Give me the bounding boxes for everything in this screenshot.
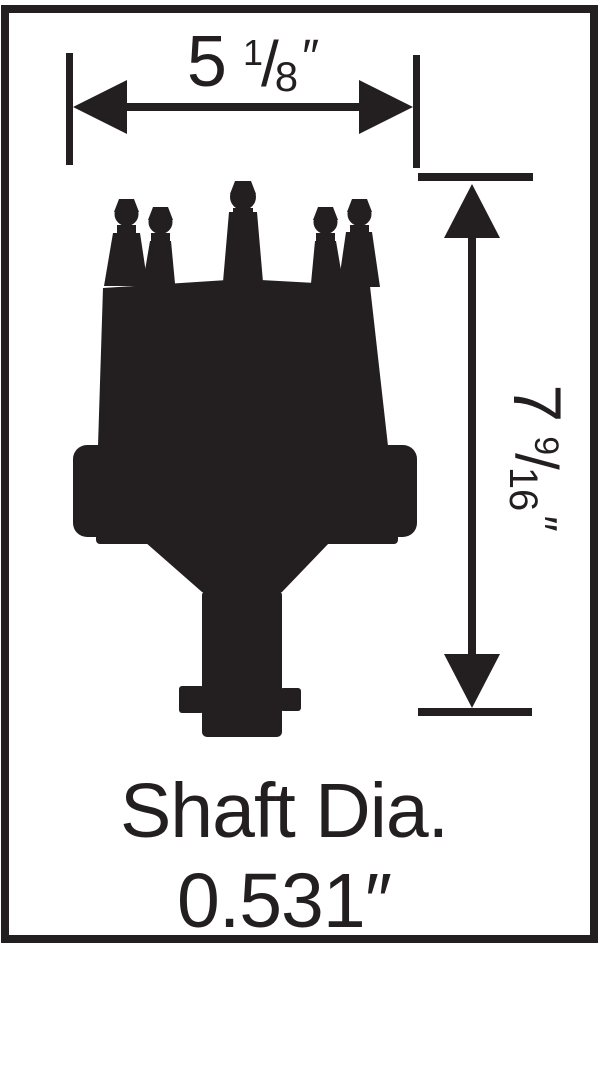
width-dim-right-arrowhead-icon	[359, 80, 413, 134]
tower-2-ball	[149, 210, 173, 234]
width-fraction-numerator: 1	[243, 35, 263, 71]
height-dim-line	[468, 232, 476, 658]
cap-tower-2	[141, 207, 176, 294]
width-dim-line	[122, 103, 372, 111]
shaft-collar-left	[179, 686, 204, 713]
height-dimension-label: 7 9 / 16 ″	[491, 363, 571, 553]
width-inch-mark: ″	[302, 34, 319, 82]
tower-4-ball	[314, 210, 338, 234]
width-whole-number: 5	[187, 26, 227, 98]
height-whole-number: 7	[503, 384, 571, 422]
tower-1-ball	[115, 202, 139, 226]
distributor-silhouette	[73, 181, 417, 737]
cap-tower-1	[104, 199, 148, 286]
tower-5-ball	[348, 202, 372, 226]
housing-taper	[145, 542, 330, 592]
tower-3-ball	[230, 184, 256, 210]
width-dim-left-extension-line	[66, 53, 73, 165]
shaft	[202, 590, 282, 737]
shaft-diameter-value: 0.531″	[54, 856, 514, 946]
tower-1-column	[104, 233, 148, 286]
shaft-diameter-text: Shaft Dia.	[54, 766, 514, 856]
cap-tower-3-center	[223, 181, 263, 282]
cap-body	[98, 279, 388, 446]
housing-flange	[73, 445, 417, 537]
height-inch-mark: ″	[518, 515, 564, 531]
height-dim-up-arrowhead-icon	[444, 184, 500, 238]
tower-2-neck	[151, 233, 170, 242]
width-dimension-label: 5 1 / 8 ″	[163, 26, 343, 101]
height-fraction-denominator: 16	[503, 467, 543, 512]
shaft-diameter-label: Shaft Dia. 0.531″	[54, 766, 514, 946]
height-dim-top-tick	[418, 173, 533, 181]
tower-4-neck	[316, 233, 335, 242]
height-dim-down-arrowhead-icon	[444, 654, 500, 708]
width-dim-right-extension-line	[413, 55, 420, 168]
tower-3-column	[223, 212, 263, 282]
height-dim-bottom-tick	[418, 708, 532, 716]
width-fraction-denominator: 8	[275, 56, 298, 98]
tower-1-neck	[117, 225, 136, 234]
shaft-collar-right	[280, 688, 301, 711]
dimension-diagram-page: 5 1 / 8 ″ 7 9 / 16 ″ Shaft Dia. 0.531″	[0, 0, 600, 1077]
housing-lip	[96, 530, 398, 544]
width-dim-left-arrowhead-icon	[73, 80, 127, 134]
tower-5-column	[338, 232, 380, 287]
cap-tower-5	[338, 199, 380, 287]
